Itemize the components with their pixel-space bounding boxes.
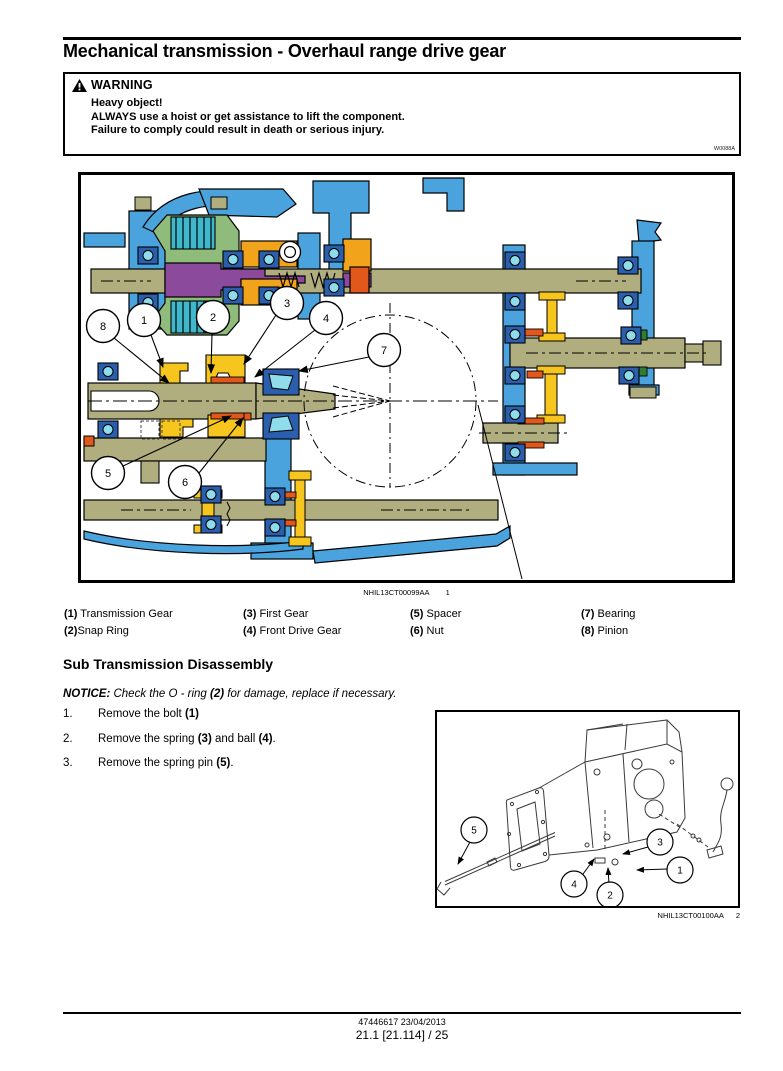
figure1-caption-code: NHIL13CT00099AA xyxy=(363,588,429,597)
warning-text: Heavy object! ALWAYS use a hoist or get … xyxy=(91,97,405,138)
warning-line: Heavy object! xyxy=(91,97,405,111)
callout-5: 5 xyxy=(471,826,477,837)
bearing xyxy=(223,251,243,268)
callout-7: 7 xyxy=(381,345,387,357)
notice-label: NOTICE: xyxy=(63,688,110,700)
bolt xyxy=(211,197,227,209)
legend-item-5: (5) Spacer xyxy=(410,608,461,620)
bolt xyxy=(630,387,656,398)
warning-line: ALWAYS use a hoist or get assistance to … xyxy=(91,111,405,125)
bearing xyxy=(265,519,285,536)
figure2-caption-code: NHIL13CT00100AA xyxy=(658,911,724,920)
section-heading: Sub Transmission Disassembly xyxy=(63,656,273,672)
bearing xyxy=(98,363,118,380)
bearing xyxy=(621,327,641,344)
detent-bolt xyxy=(612,859,618,865)
lever-stem xyxy=(713,790,727,852)
warning-box: WARNING Heavy object! ALWAYS use a hoist… xyxy=(63,72,741,156)
lever-knob xyxy=(721,778,733,790)
footer-page-number: 21.1 [21.114] / 25 xyxy=(63,1028,741,1042)
shift-rail xyxy=(445,836,555,885)
callout-5: 5 xyxy=(105,468,111,480)
warning-header: WARNING xyxy=(72,78,153,92)
housing-drawing: 5 4 2 3 1 xyxy=(437,712,738,906)
bearing xyxy=(505,444,525,461)
legend-item-7: (7) Bearing xyxy=(581,608,635,620)
taper-bearing-lower xyxy=(263,413,299,439)
bearing xyxy=(618,292,638,309)
flange-window xyxy=(517,802,540,851)
figure-cross-section: 8 1 2 3 4 7 5 6 xyxy=(78,172,735,583)
legend-item-8: (8) Pinion xyxy=(581,625,628,637)
seal-ring xyxy=(350,267,369,293)
bearing xyxy=(201,516,221,533)
legend-item-4: (4) Front Drive Gear xyxy=(243,625,341,637)
cross-section-drawing: 8 1 2 3 4 7 5 6 xyxy=(81,175,732,580)
seal xyxy=(525,329,543,336)
bearing xyxy=(98,421,118,438)
bearing xyxy=(265,488,285,505)
title-rule xyxy=(63,37,741,40)
bearing xyxy=(505,252,525,269)
warning-code: W0088A xyxy=(714,146,735,152)
callout-2: 2 xyxy=(607,891,613,902)
rear-bore xyxy=(634,769,664,799)
callout-4: 4 xyxy=(571,880,577,891)
warning-line: Failure to comply could result in death … xyxy=(91,124,405,138)
footer-rule xyxy=(63,1012,741,1014)
warning-triangle-icon xyxy=(72,79,87,92)
bearing xyxy=(324,279,344,296)
callout-4: 4 xyxy=(323,313,329,325)
lever-base xyxy=(707,846,723,858)
housing-stub xyxy=(84,233,125,247)
figure1-caption: NHIL13CT00099AA1 xyxy=(78,588,735,597)
bearing xyxy=(505,326,525,343)
page-title: Mechanical transmission - Overhaul range… xyxy=(63,41,506,62)
nut xyxy=(244,413,251,420)
running-header: Transmission - Mechanical transmission xyxy=(0,0,783,3)
figure2-caption: NHIL13CT00100AA2 xyxy=(435,911,740,920)
figure2-callouts: 5 4 2 3 1 xyxy=(461,817,693,906)
detent-spring xyxy=(595,858,605,863)
callout-3: 3 xyxy=(284,298,290,310)
figure1-caption-number: 1 xyxy=(446,588,450,597)
legend-item-3: (3) First Gear xyxy=(243,608,308,620)
front-flange xyxy=(506,788,549,870)
bearing xyxy=(505,406,525,423)
callout-1: 1 xyxy=(677,866,683,877)
figure-housing: 5 4 2 3 1 xyxy=(435,710,740,908)
manual-page: Transmission - Mechanical transmission M… xyxy=(0,0,783,1071)
bearing xyxy=(201,486,221,503)
callout-8: 8 xyxy=(100,321,106,333)
bearing xyxy=(505,367,525,384)
warning-title: WARNING xyxy=(91,78,153,92)
bearing xyxy=(618,257,638,274)
bearing xyxy=(324,245,344,262)
bearing xyxy=(619,367,639,384)
shaft-step xyxy=(141,461,159,483)
seal xyxy=(84,436,94,446)
center-column-foot xyxy=(493,463,577,475)
footer-doc-number: 47446617 23/04/2013 xyxy=(63,1017,741,1027)
running-header-text: Transmission - Mechanical transmission xyxy=(286,0,498,3)
legend-item-1: (1) Transmission Gear xyxy=(64,608,173,620)
bearing xyxy=(138,247,158,264)
clutch-discs-upper xyxy=(171,217,215,249)
callout-3: 3 xyxy=(657,838,663,849)
bearing-carrier-right xyxy=(343,239,371,271)
bottom-housing-band xyxy=(313,526,510,563)
legend-item-2: (2)Snap Ring xyxy=(64,625,129,637)
hidden-spline xyxy=(141,421,159,439)
callout-1: 1 xyxy=(141,315,147,327)
transmission-gear-upper xyxy=(160,363,188,383)
figure2-caption-number: 2 xyxy=(736,911,740,920)
bearing xyxy=(223,287,243,304)
legend-item-6: (6) Nut xyxy=(410,625,444,637)
rear-wall-flag xyxy=(637,220,661,243)
callout-6: 6 xyxy=(182,477,188,489)
notice-line: NOTICE: Check the O - ring (2) for damag… xyxy=(63,688,396,700)
oring-symbol-inner xyxy=(285,247,296,258)
bolt xyxy=(135,197,151,210)
seal xyxy=(527,371,543,378)
snap-ring-upper xyxy=(211,377,244,383)
bearing xyxy=(259,251,279,268)
taper-bearing-upper xyxy=(263,369,299,395)
housing-top-wall xyxy=(423,178,464,211)
bearing xyxy=(505,293,525,310)
callout-2: 2 xyxy=(210,312,216,324)
transmission-gear-lower xyxy=(160,419,193,437)
